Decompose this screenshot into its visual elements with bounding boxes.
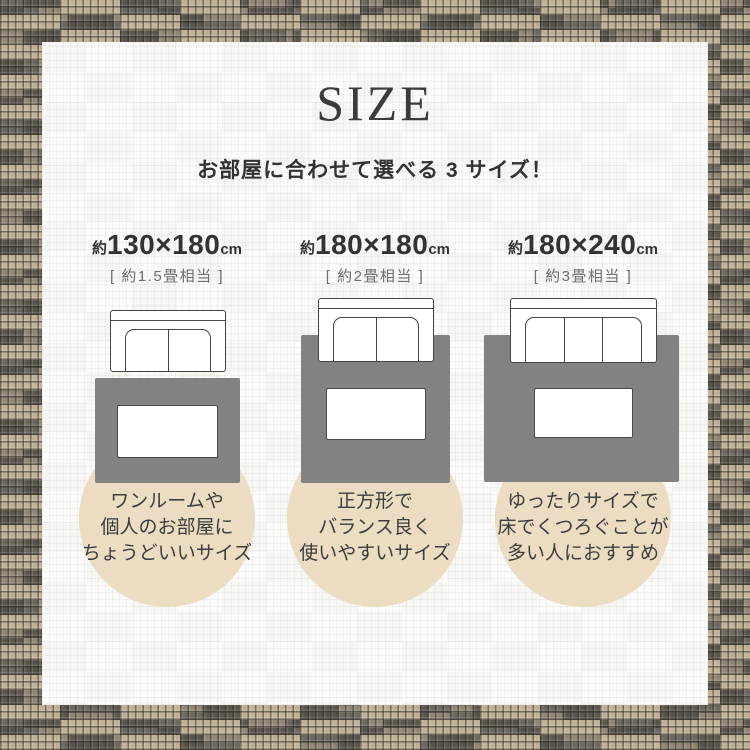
room-illustration: ワンルームや 個人のお部屋に ちょうどいいサイズ (63, 295, 271, 613)
description-line: ゆったりサイズで (507, 489, 658, 515)
description-line: ワンルームや (110, 489, 223, 515)
sofa-cushion (126, 330, 168, 371)
description-line: 個人のお部屋に (100, 515, 233, 541)
size-column-130x180: 約130×180cm [ 約1.5畳相当 ] ワンルームや 個人のお部屋に ちょ… (63, 230, 271, 613)
page-subtitle: お部屋に合わせて選べる 3 サイズ！ (42, 158, 708, 183)
tatami-equivalent-label: [ 約3畳相当 ] (479, 267, 687, 287)
rug-illustration (95, 378, 240, 483)
sofa-backrest (111, 311, 225, 321)
sofa-armrest-left (111, 321, 125, 371)
tatami-equivalent-label: [ 約1.5畳相当 ] (63, 267, 271, 287)
sofa-seats (525, 317, 642, 362)
description-line: 多い人におすすめ (507, 541, 659, 567)
size-unit-label: cm (636, 241, 658, 258)
size-approx-label: 約 (300, 240, 315, 257)
page-title: SIZE (42, 78, 708, 128)
size-column-180x180: 約180×180cm [ 約2畳相当 ] 正方形で バランス良く 使いやすいサイ… (271, 230, 479, 613)
size-unit-label: cm (220, 241, 242, 258)
tatami-equivalent-label: [ 約2畳相当 ] (271, 267, 479, 287)
sofa-illustration (510, 298, 657, 363)
sofa-backrest (319, 299, 433, 309)
sofa-armrest-left (511, 309, 525, 362)
size-columns: 約130×180cm [ 約1.5畳相当 ] ワンルームや 個人のお部屋に ちょ… (63, 230, 687, 613)
sofa-cushion (526, 318, 564, 362)
room-illustration: 正方形で バランス良く 使いやすいサイズ (271, 295, 479, 613)
sofa-cushion (564, 318, 603, 362)
size-column-180x240: 約180×240cm [ 約3畳相当 ] ゆったりサイズで 床でくつろぐことが … (479, 230, 687, 613)
size-dimensions: 180×240 (523, 229, 636, 260)
content-panel: SIZE お部屋に合わせて選べる 3 サイズ！ 約130×180cm [ 約1.… (42, 42, 708, 705)
sofa-body (319, 309, 433, 361)
sofa-armrest-right (211, 321, 225, 371)
description-line: バランス良く (318, 515, 432, 541)
rug-size-infographic: SIZE お部屋に合わせて選べる 3 サイズ！ 約130×180cm [ 約1.… (0, 0, 750, 750)
sofa-backrest (511, 299, 656, 309)
size-heading: 約180×180cm (271, 230, 479, 265)
sofa-armrest-left (319, 309, 333, 361)
size-heading: 約180×240cm (479, 230, 687, 265)
sofa-body (111, 321, 225, 371)
sofa-cushion (168, 330, 211, 371)
sofa-seats (125, 329, 211, 371)
size-approx-label: 約 (92, 240, 107, 257)
sofa-armrest-right (642, 309, 656, 362)
sofa-armrest-right (419, 309, 433, 361)
sofa-illustration (318, 298, 434, 362)
size-heading: 約130×180cm (63, 230, 271, 265)
description-line: ちょうどいいサイズ (82, 541, 252, 567)
table-illustration (534, 388, 633, 438)
description-line: 使いやすいサイズ (299, 541, 450, 567)
size-unit-label: cm (428, 241, 450, 258)
size-dimensions: 180×180 (315, 229, 428, 260)
sofa-cushion (334, 318, 376, 361)
sofa-cushion (602, 318, 641, 362)
table-illustration (117, 405, 218, 458)
description-line: 床でくつろぐことが (497, 515, 668, 541)
sofa-illustration (110, 310, 226, 372)
sofa-seats (333, 317, 419, 361)
size-approx-label: 約 (508, 240, 523, 257)
room-illustration: ゆったりサイズで 床でくつろぐことが 多い人におすすめ (479, 295, 687, 613)
description-line: 正方形で (337, 489, 413, 515)
sofa-cushion (376, 318, 419, 361)
sofa-body (511, 309, 656, 362)
size-dimensions: 130×180 (107, 229, 220, 260)
table-illustration (326, 388, 426, 440)
